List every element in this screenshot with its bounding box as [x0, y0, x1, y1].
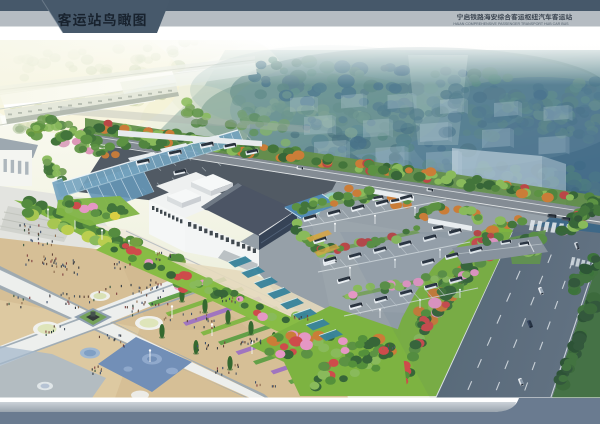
- svg-text:HAIAN COMPREHENSIVE PASSENGER: HAIAN COMPREHENSIVE PASSENGER TRANSPORT …: [453, 22, 569, 26]
